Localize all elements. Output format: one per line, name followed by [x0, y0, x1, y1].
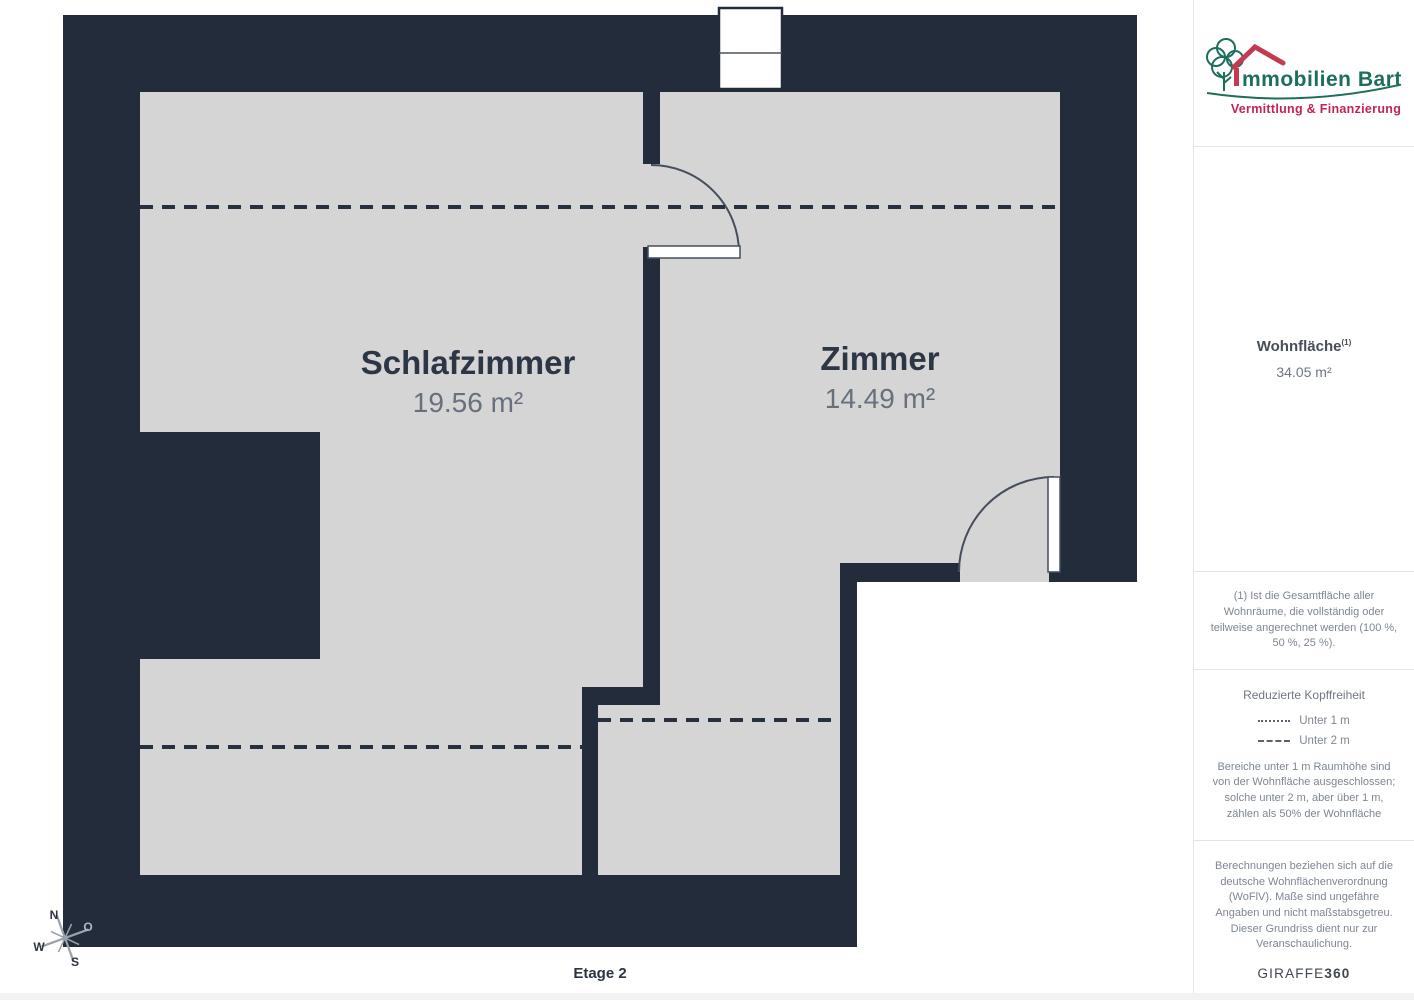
door-leaf-entry	[1048, 477, 1060, 572]
disclaimer-text: Berechnungen beziehen sich auf die deuts…	[1208, 859, 1400, 953]
dashed-line-sample	[1258, 740, 1290, 742]
room-label-schlafzimmer: Schlafzimmer	[361, 344, 576, 381]
room-area-schlafzimmer: 19.56 m²	[413, 387, 524, 418]
legend-row-under-1m: Unter 1 m	[1258, 715, 1350, 727]
footnote-card: (1) Ist die Gesamtfläche aller Wohnräume…	[1194, 572, 1414, 670]
legend-note: Bereiche unter 1 m Raumhöhe sind von der…	[1208, 760, 1400, 822]
vendor-name: GIRAFFE	[1257, 966, 1324, 981]
room-floor-zimmer	[598, 92, 1060, 875]
living-area-card: Wohnfläche(1) 34.05 m²	[1194, 147, 1414, 572]
living-area-title: Wohnfläche(1)	[1257, 338, 1352, 355]
logo-card: mmobilien Bart Vermittlung & Finanzierun…	[1194, 0, 1414, 147]
vendor-logo: GIRAFFE360	[1257, 966, 1350, 981]
company-tagline: Vermittlung & Finanzierung	[1230, 102, 1400, 116]
legend-title: Reduzierte Kopffreiheit	[1243, 688, 1365, 702]
disclaimer-card: Berechnungen beziehen sich auf die deuts…	[1194, 841, 1414, 1000]
company-logo: mmobilien Bart Vermittlung & Finanzierun…	[1194, 0, 1414, 146]
logo-initial-bar	[1234, 68, 1239, 86]
company-name: mmobilien Bart	[1242, 68, 1402, 91]
floorplan-page: Schlafzimmer 19.56 m² Zimmer 14.49 m² N …	[0, 0, 1414, 1000]
footnote-marker: (1)	[1341, 338, 1351, 347]
compass-north-label: N	[50, 908, 59, 922]
legend-card: Reduzierte Kopffreiheit Unter 1 m Unter …	[1194, 670, 1414, 841]
entry-door-threshold	[960, 563, 1049, 582]
legend-label-under-2m: Unter 2 m	[1299, 735, 1350, 747]
compass-east-label: O	[83, 920, 92, 934]
legend-row-under-2m: Unter 2 m	[1258, 735, 1350, 747]
legend-label-under-1m: Unter 1 m	[1299, 715, 1350, 727]
vendor-suffix: 360	[1324, 966, 1350, 981]
compass-south-label: S	[71, 955, 79, 969]
room-label-zimmer: Zimmer	[820, 340, 939, 377]
floor-level-label: Etage 2	[573, 965, 626, 982]
floorplan-drawing: Schlafzimmer 19.56 m² Zimmer 14.49 m² N …	[0, 0, 1193, 1000]
page-bottom-strip	[0, 993, 1414, 1000]
chimney-block	[719, 8, 782, 89]
room-area-zimmer: 14.49 m²	[825, 383, 936, 414]
door-leaf-interior	[648, 246, 740, 258]
compass-west-label: W	[33, 940, 45, 954]
living-area-value: 34.05 m²	[1276, 364, 1331, 380]
dotted-line-sample	[1258, 720, 1290, 722]
sidebar: mmobilien Bart Vermittlung & Finanzierun…	[1193, 0, 1414, 1000]
footnote-text: (1) Ist die Gesamtfläche aller Wohnräume…	[1210, 589, 1398, 651]
